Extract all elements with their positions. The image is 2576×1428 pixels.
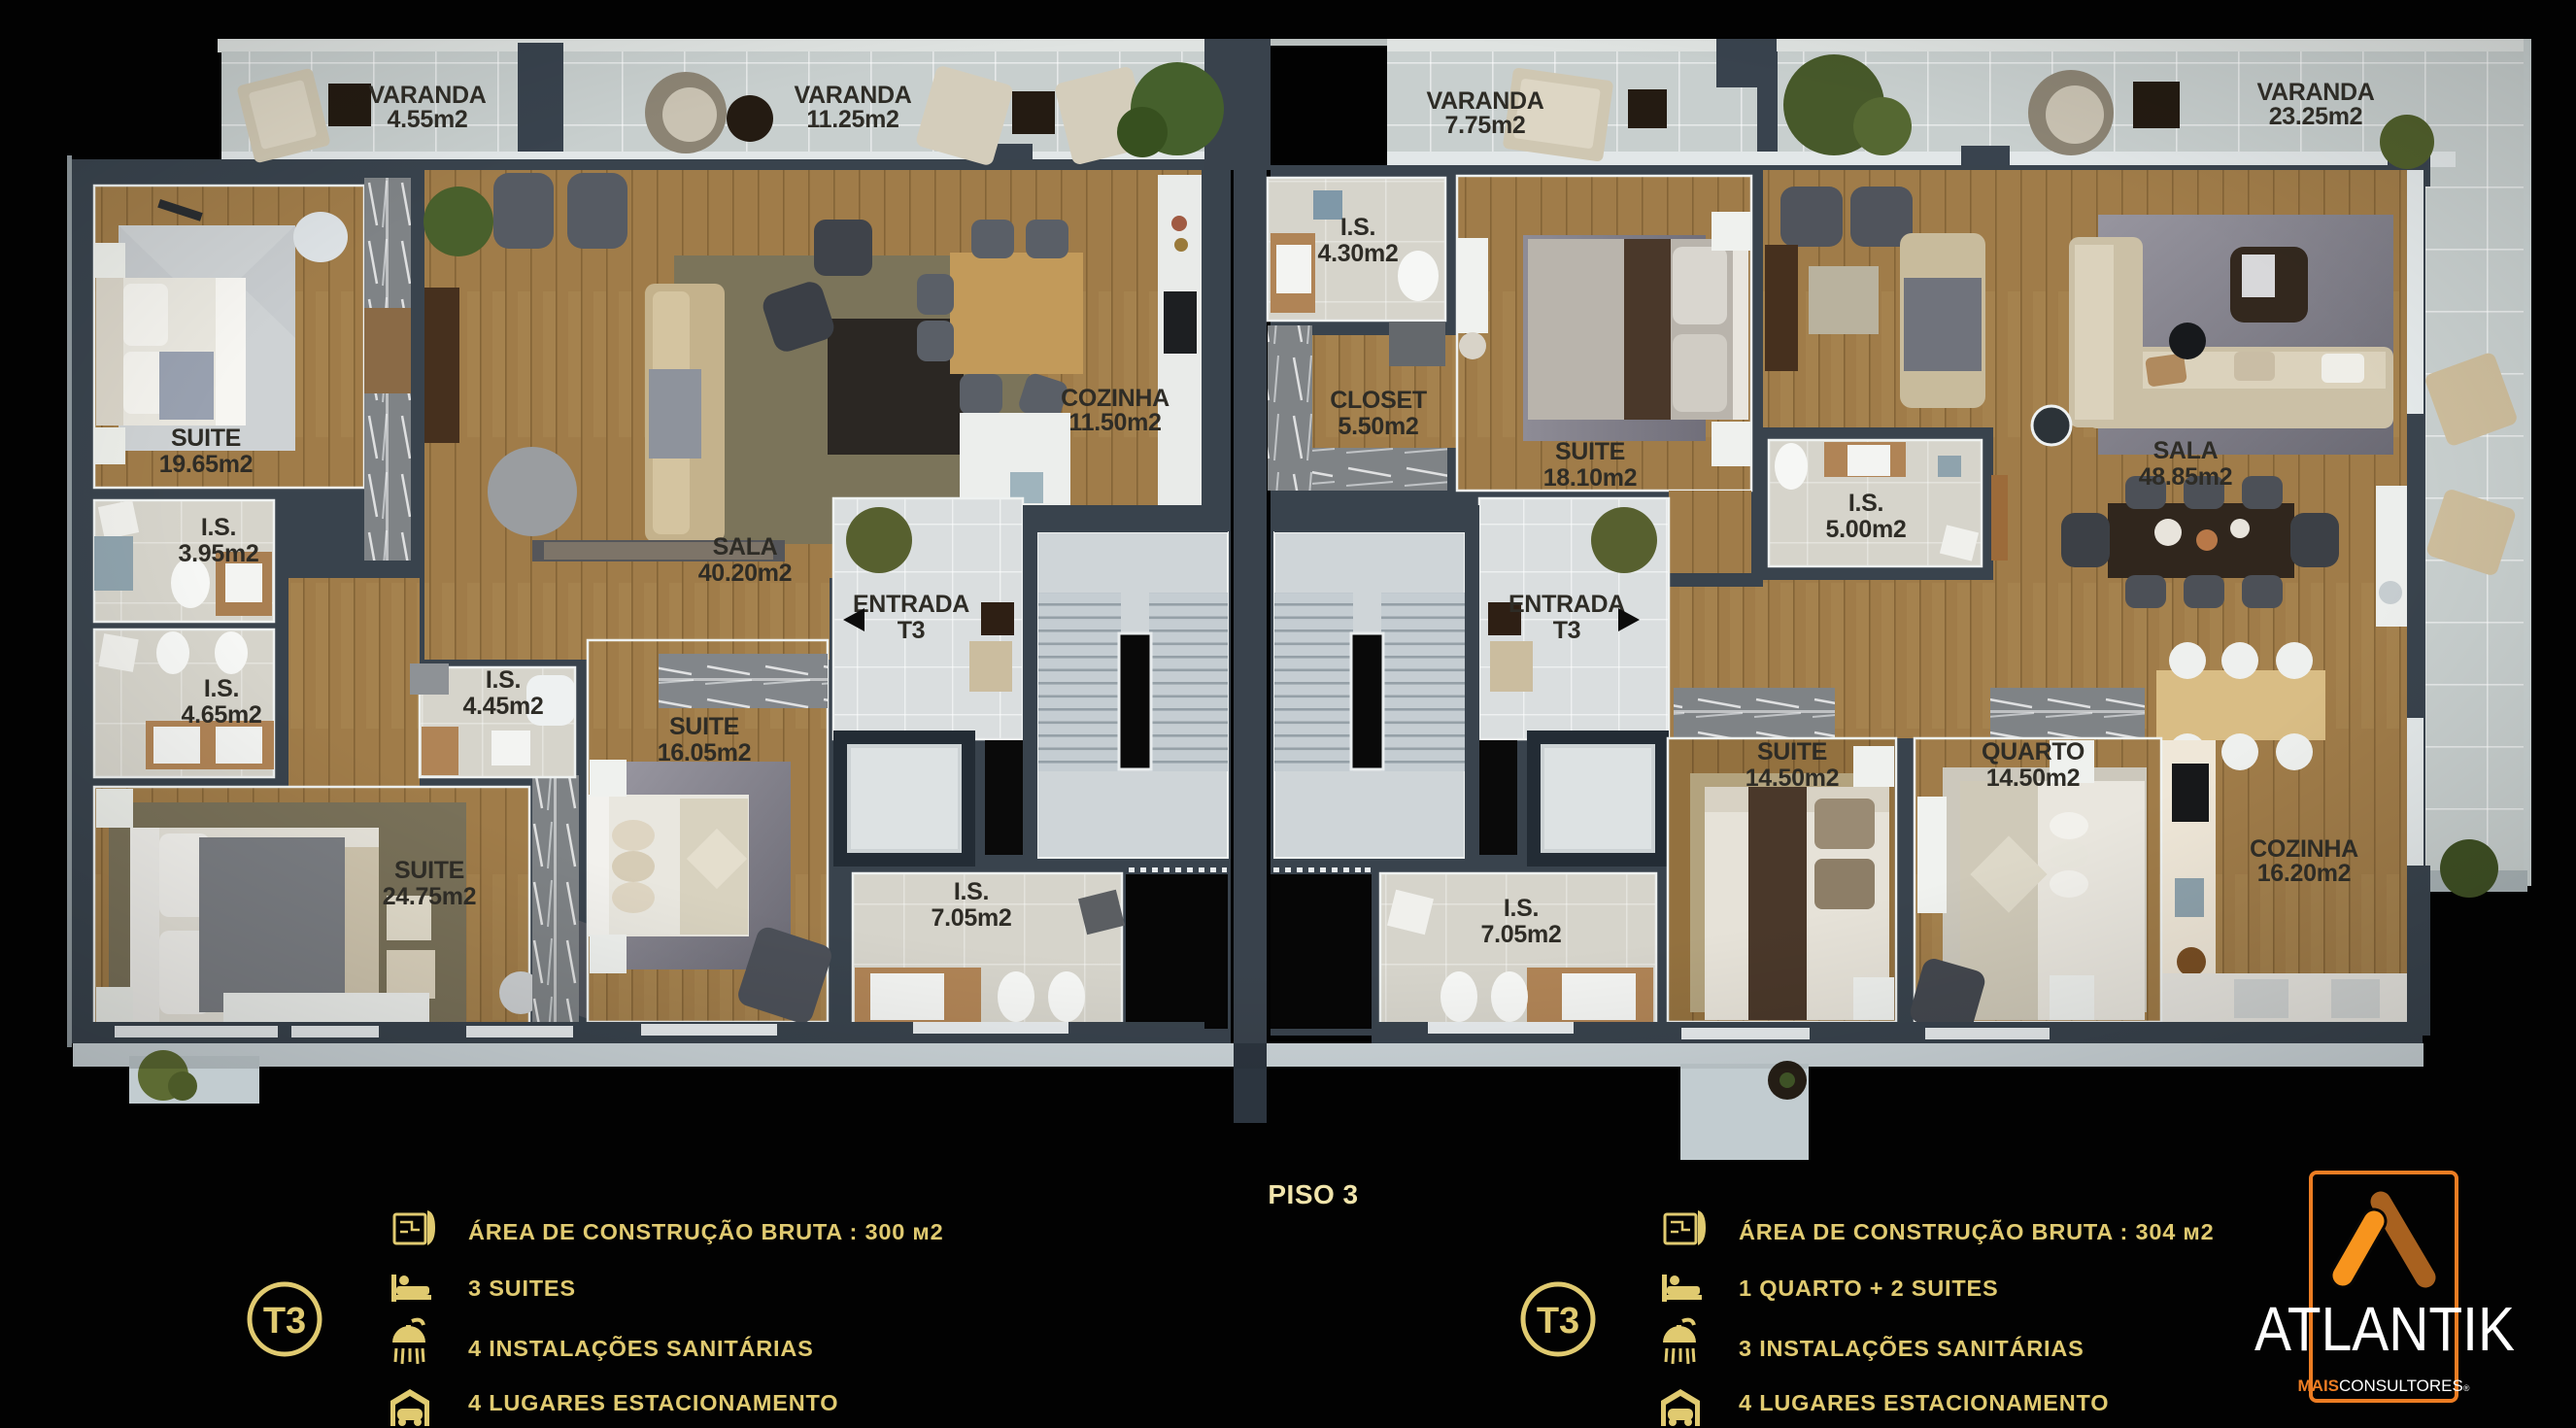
svg-text:4 LUGARES ESTACIONAMENTO: 4 LUGARES ESTACIONAMENTO (1739, 1390, 2109, 1415)
svg-text:1 QUARTO + 2 SUITES: 1 QUARTO + 2 SUITES (1739, 1275, 1998, 1301)
svg-text:ÁREA DE CONSTRUÇÃO BRUTA : 30: ÁREA DE CONSTRUÇÃO BRUTA : 304 м2 (1739, 1218, 2214, 1244)
svg-text:11.50m2: 11.50m2 (1068, 409, 1161, 436)
svg-text:4 LUGARES ESTACIONAMENTO: 4 LUGARES ESTACIONAMENTO (468, 1390, 838, 1415)
svg-text:SUITE: SUITE (669, 713, 739, 740)
svg-text:48.85m2: 48.85m2 (2139, 463, 2233, 491)
svg-text:23.25m2: 23.25m2 (2269, 103, 2363, 130)
svg-text:I.S.: I.S. (1340, 214, 1375, 241)
svg-text:16.05m2: 16.05m2 (658, 739, 752, 766)
svg-text:SALA: SALA (2153, 437, 2219, 464)
svg-text:I.S.: I.S. (954, 878, 989, 905)
svg-text:4.30m2: 4.30m2 (1318, 240, 1399, 267)
svg-text:5.00m2: 5.00m2 (1826, 516, 1907, 543)
svg-text:T3: T3 (263, 1301, 306, 1342)
svg-text:ENTRADA: ENTRADA (853, 591, 969, 618)
svg-text:19.65m2: 19.65m2 (159, 451, 254, 478)
svg-text:I.S.: I.S. (204, 675, 239, 702)
svg-text:PISO 3: PISO 3 (1268, 1179, 1358, 1209)
svg-text:COZINHA: COZINHA (2250, 835, 2358, 863)
svg-text:40.20m2: 40.20m2 (698, 560, 793, 587)
svg-text:MAISCONSULTORES®: MAISCONSULTORES® (2298, 1377, 2470, 1395)
svg-text:18.10m2: 18.10m2 (1543, 464, 1638, 492)
svg-text:7.75m2: 7.75m2 (1445, 112, 1526, 139)
svg-text:14.50m2: 14.50m2 (1746, 765, 1840, 792)
svg-text:COZINHA: COZINHA (1061, 385, 1169, 412)
svg-text:SUITE: SUITE (1757, 738, 1827, 765)
svg-text:I.S.: I.S. (486, 666, 521, 694)
svg-text:14.50m2: 14.50m2 (1986, 765, 2081, 792)
svg-text:VARANDA: VARANDA (794, 82, 911, 109)
svg-text:SUITE: SUITE (171, 425, 241, 452)
svg-text:16.20m2: 16.20m2 (2257, 860, 2352, 887)
svg-text:T3: T3 (898, 617, 926, 644)
svg-text:T3: T3 (1537, 1301, 1579, 1342)
svg-text:3 SUITES: 3 SUITES (468, 1275, 576, 1301)
svg-text:ÁREA DE CONSTRUÇÃO BRUTA : 30: ÁREA DE CONSTRUÇÃO BRUTA : 300 м2 (468, 1218, 943, 1244)
svg-text:3.95m2: 3.95m2 (179, 540, 259, 567)
svg-text:CLOSET: CLOSET (1330, 387, 1427, 414)
svg-text:I.S.: I.S. (201, 514, 236, 541)
svg-text:I.S.: I.S. (1848, 490, 1883, 517)
svg-text:7.05m2: 7.05m2 (932, 904, 1012, 932)
svg-text:ENTRADA: ENTRADA (1508, 591, 1625, 618)
svg-text:4.45m2: 4.45m2 (463, 693, 544, 720)
svg-text:SUITE: SUITE (394, 857, 464, 884)
svg-text:SUITE: SUITE (1555, 438, 1625, 465)
svg-text:VARANDA: VARANDA (2256, 79, 2374, 106)
svg-text:3 INSTALAÇÕES SANITÁRIAS: 3 INSTALAÇÕES SANITÁRIAS (1739, 1335, 2085, 1361)
svg-text:4.65m2: 4.65m2 (182, 701, 262, 729)
svg-text:5.50m2: 5.50m2 (1339, 413, 1419, 440)
svg-text:11.25m2: 11.25m2 (806, 106, 898, 133)
svg-text:4.55m2: 4.55m2 (388, 106, 468, 133)
svg-text:7.05m2: 7.05m2 (1481, 921, 1562, 948)
svg-text:24.75m2: 24.75m2 (383, 883, 477, 910)
svg-text:SALA: SALA (713, 533, 778, 561)
svg-text:T3: T3 (1553, 617, 1581, 644)
svg-text:ATLANTIK: ATLANTIK (2254, 1294, 2515, 1364)
svg-text:VARANDA: VARANDA (1426, 87, 1543, 115)
svg-text:I.S.: I.S. (1504, 895, 1539, 922)
svg-text:VARANDA: VARANDA (368, 82, 486, 109)
svg-text:QUARTO: QUARTO (1982, 738, 2085, 765)
svg-text:4 INSTALAÇÕES SANITÁRIAS: 4 INSTALAÇÕES SANITÁRIAS (468, 1335, 814, 1361)
